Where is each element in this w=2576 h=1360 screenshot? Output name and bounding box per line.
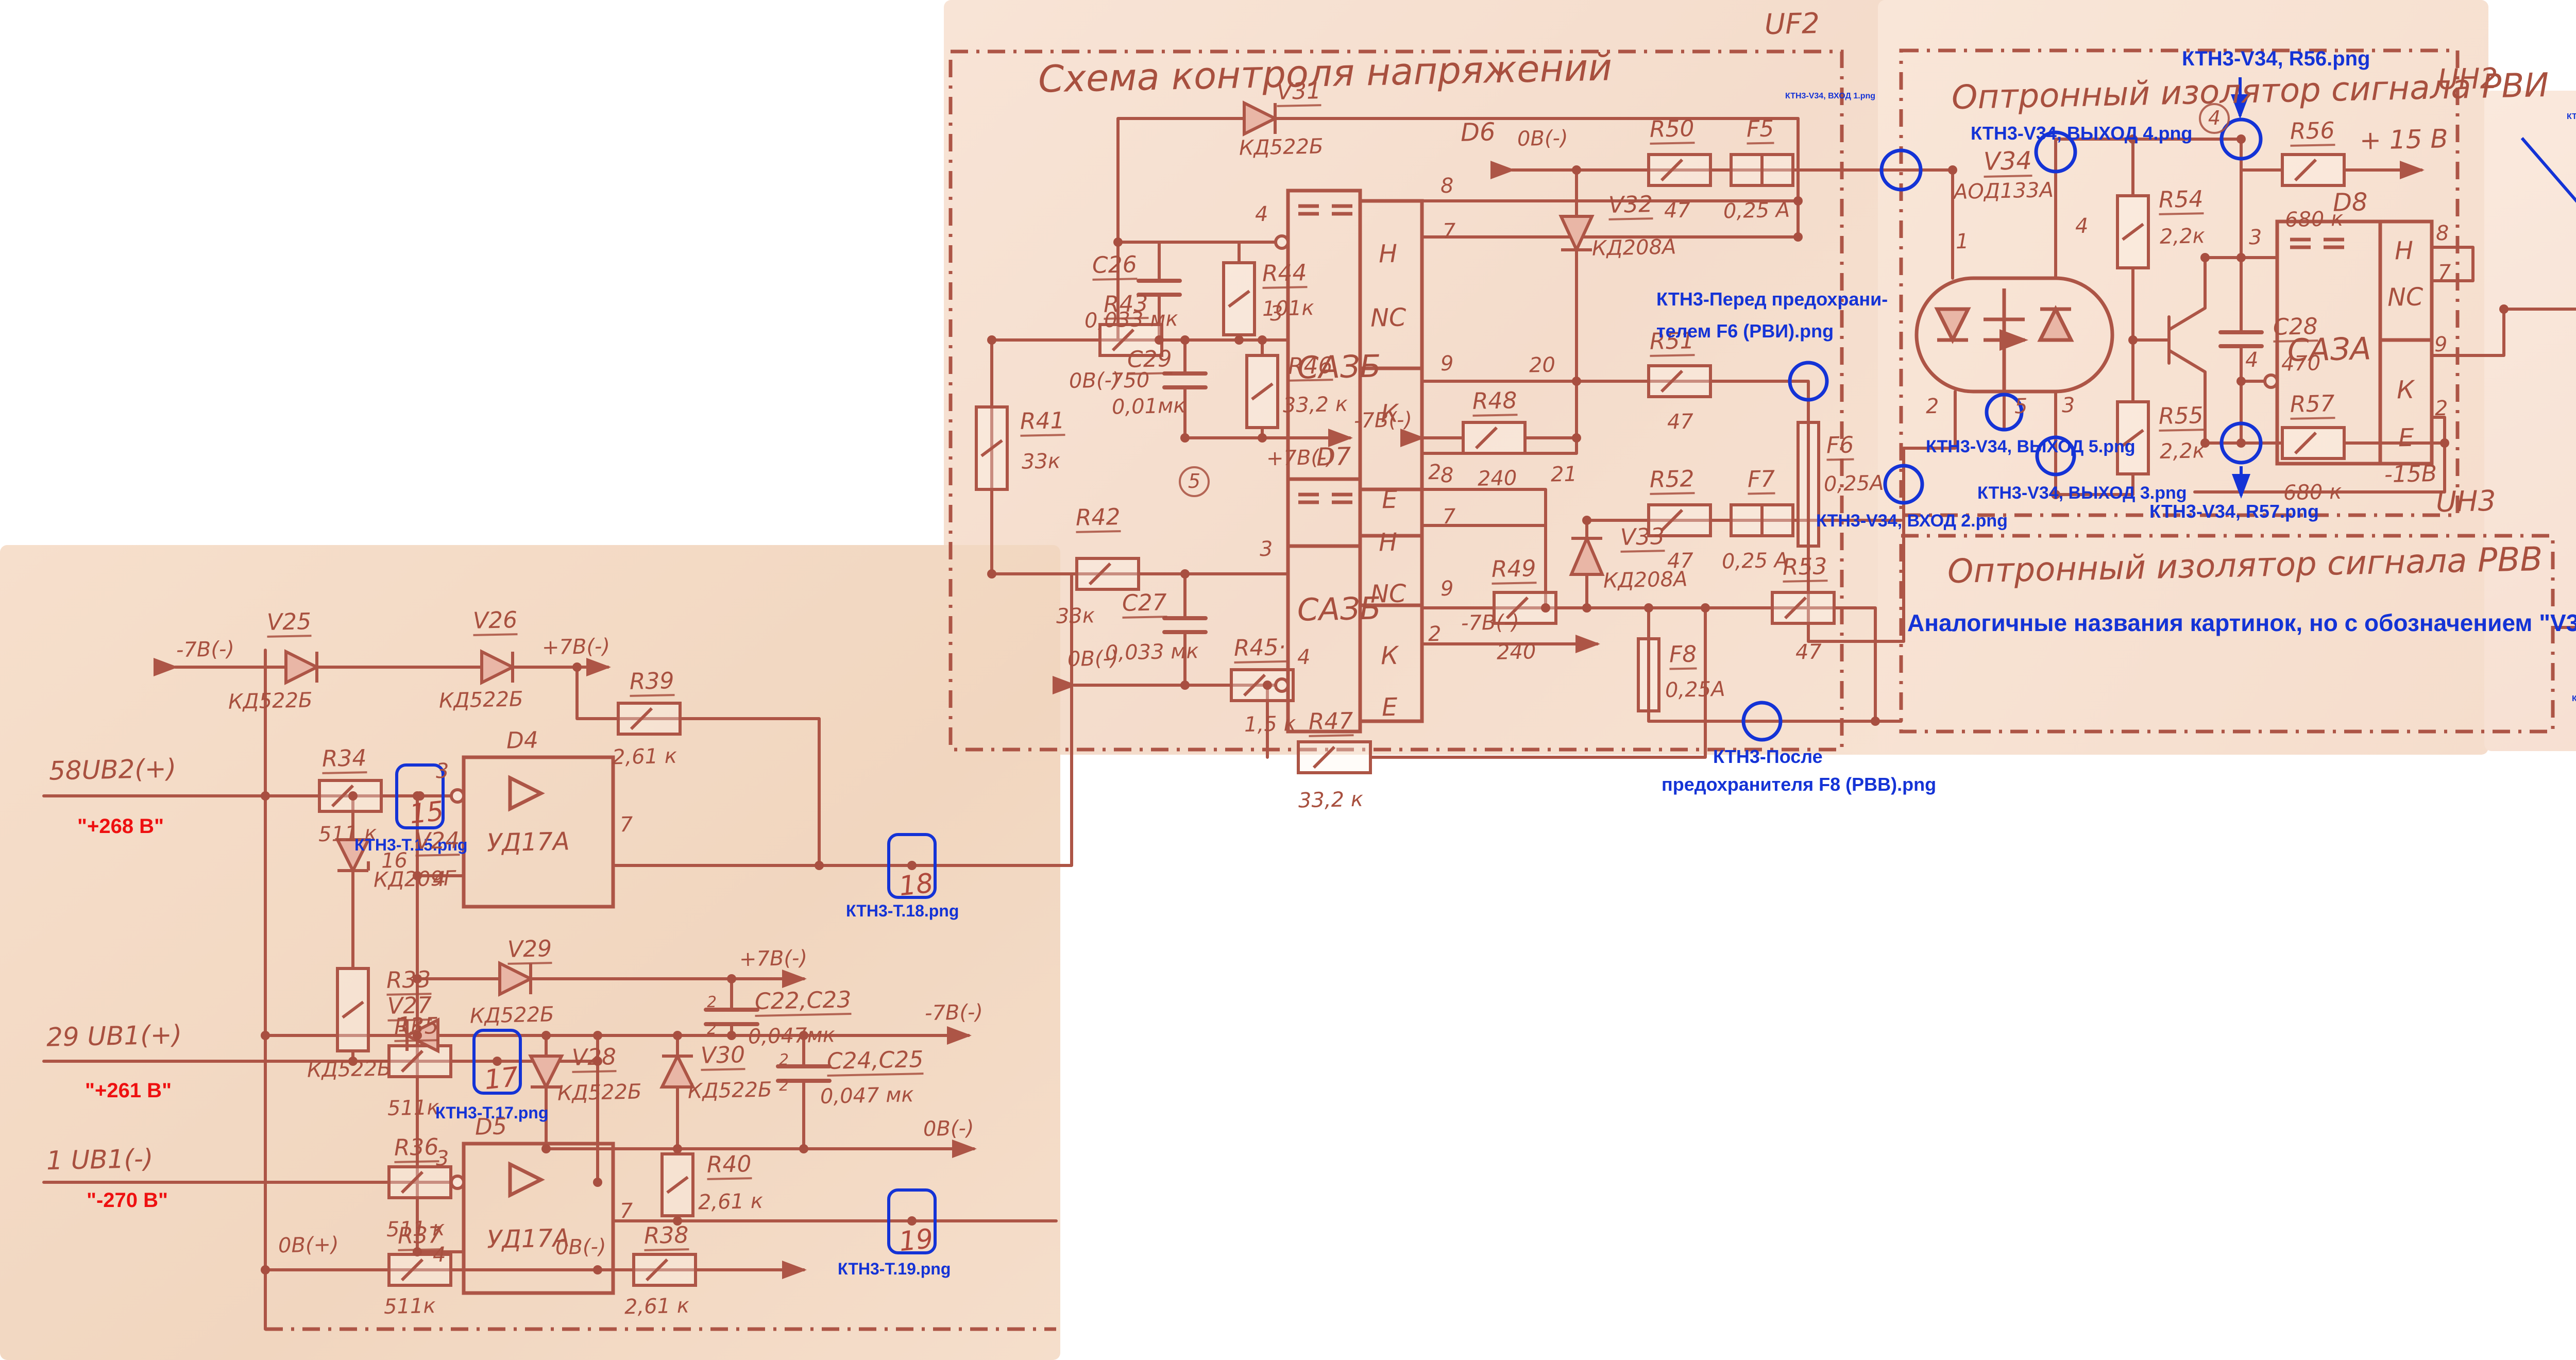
- r56-ref: R56: [2290, 119, 2335, 147]
- d8-ref: D8: [2332, 189, 2368, 216]
- v24-value: КД209Г: [374, 868, 455, 891]
- scanned-schematic-page: Схема контроля напряжений UF2 Оптронный …: [0, 0, 2576, 1360]
- v28-value: КД522Б: [557, 1081, 642, 1104]
- rail-m15: -15В: [2384, 462, 2437, 487]
- v26-ref: V26: [472, 608, 517, 636]
- c29-ref: C29: [1127, 347, 1172, 375]
- annotation-t19: КТН3-Т.19.png: [838, 1260, 951, 1279]
- tp19-number: 19: [897, 1223, 935, 1258]
- rail-m7-r48: -7В(-): [1354, 409, 1413, 432]
- rail-0vm-d7: 0В(-): [1067, 648, 1118, 670]
- v34-pin3: 3: [2062, 395, 2075, 417]
- r39-value: 2,61 к: [612, 745, 677, 769]
- r55-value: 2,2к: [2160, 440, 2206, 463]
- f8-value: 0,25А: [1665, 678, 1725, 701]
- d4-pin7: 7: [620, 814, 633, 836]
- d8-pin7: 7: [2438, 262, 2451, 284]
- d7-pin3: 3: [1260, 538, 1273, 560]
- annotation-out15: КТН3-ВЫХОД 15 - РВВ.png: [2572, 694, 2576, 704]
- v32-value: КД208А: [1592, 236, 1676, 259]
- annotation-r56: КТН3-V34, R56.png: [2182, 47, 2370, 71]
- r47-value: 33,2 к: [1298, 789, 1364, 812]
- c22-c23-value: 0,047мк: [748, 1024, 836, 1048]
- d4-pin3: 3: [436, 760, 449, 783]
- v34-pin4: 4: [2075, 215, 2089, 237]
- rail-m7-left-mid: -7В(-): [925, 1001, 984, 1024]
- r53-value: 47: [1795, 641, 1822, 663]
- d6-type: САЗБ: [1297, 350, 1381, 384]
- r38-value: 2,61 к: [624, 1295, 690, 1318]
- rail-0vm-left: 0В(-): [923, 1117, 974, 1140]
- annotation-posle-f8-line1: КТН3-После: [1713, 746, 1823, 768]
- f5-ref: F5: [1746, 117, 1774, 144]
- rail-p7-c22: +7В(-): [739, 947, 808, 971]
- d4-value: УД17А: [486, 828, 570, 856]
- f7-value: 0,25 А: [1722, 550, 1789, 573]
- measured-268v: "+268 В": [77, 815, 164, 838]
- annotation-vyhod5: КТН3-V34, ВЫХОД 5.png: [1926, 437, 2136, 457]
- tp18-number: 18: [897, 868, 935, 903]
- d8-pin9: 9: [2434, 334, 2448, 356]
- circled-note-4: 4: [2199, 103, 2230, 134]
- node-21: 21: [1551, 463, 1578, 485]
- d8-pin3: 3: [2249, 227, 2262, 249]
- rail-0vm-r43: 0В(-): [1069, 369, 1120, 392]
- d6-pin8: 8: [1440, 175, 1454, 197]
- v25-value: КД522Б: [228, 689, 313, 712]
- r46-value: 33,2 к: [1283, 394, 1348, 417]
- r48-value: 240: [1478, 467, 1517, 490]
- d4-ref: D4: [506, 728, 539, 753]
- r54-value: 2,2к: [2160, 225, 2206, 248]
- annotation-pered-f6-line2: телем F6 (РВИ).png: [1656, 320, 1834, 342]
- f6-ref: F6: [1826, 433, 1854, 461]
- d8-cell-h: Н: [2394, 238, 2413, 264]
- d5-ref: D5: [475, 1115, 507, 1139]
- d8-cell-nc: NC: [2387, 284, 2423, 311]
- v34-value: АОД133А: [1954, 179, 2054, 203]
- v26-value: КД522Б: [439, 688, 523, 711]
- c23-multiplier: 2: [707, 1021, 717, 1038]
- r57-ref: R57: [2290, 392, 2335, 420]
- c26-ref: C26: [1092, 253, 1137, 281]
- c25-multiplier: 2: [779, 1078, 789, 1094]
- d6-ref: D6: [1460, 119, 1496, 146]
- d7-pin7: 7: [1443, 506, 1456, 528]
- v24-ref: V24: [415, 829, 460, 857]
- rail-p7-left-top: +7В(-): [542, 636, 611, 659]
- d8-cell-e: Е: [2398, 425, 2414, 451]
- v27-value: КД522Б: [307, 1058, 392, 1081]
- r35-ref: R35: [394, 1014, 439, 1042]
- v32-ref: V32: [1608, 193, 1653, 220]
- v34-ref: V34: [1983, 148, 2032, 178]
- rail-m7-d7: -7В(-): [1461, 611, 1520, 634]
- r49-ref: R49: [1491, 557, 1536, 585]
- r35-value: 511к: [387, 1097, 439, 1119]
- annotation-r57: КТН3-V34, R57.png: [2149, 501, 2319, 522]
- r52-value: 47: [1667, 550, 1694, 572]
- r54-ref: R54: [2158, 188, 2204, 215]
- f8-ref: F8: [1669, 642, 1697, 670]
- tp15-number: 15: [408, 796, 445, 830]
- r52-ref: R52: [1649, 467, 1694, 495]
- r55-ref: R55: [2158, 404, 2204, 432]
- r40-value: 2,61 к: [698, 1191, 764, 1214]
- rail-p15: + 15 В: [2359, 125, 2448, 154]
- r41-ref: R41: [1020, 409, 1065, 437]
- v29-value: КД522Б: [470, 1004, 554, 1027]
- annotation-posle-f8-line2: предохранителя F8 (РВВ).png: [1662, 774, 1936, 795]
- rail-0vm-r38: 0В(-): [555, 1236, 606, 1259]
- annotation-out16: КТН3-ВЫХОД 16 - РВИ.png: [2567, 112, 2576, 122]
- annotation-t18: КТН3-Т.18.png: [846, 902, 959, 921]
- r34-ref: R34: [321, 746, 367, 774]
- c29-value: 0,01мк: [1112, 395, 1186, 418]
- r44-ref: R44: [1262, 261, 1307, 289]
- d5-pin7: 7: [620, 1200, 633, 1222]
- r33-ref: R33: [386, 968, 431, 996]
- c22-multiplier: 2: [707, 994, 717, 1011]
- d8-pin2: 2: [2435, 398, 2448, 420]
- c24-c25-value: 0,047 мк: [820, 1084, 914, 1108]
- input-29ub1-label: 29 UB1(+): [46, 1021, 182, 1051]
- r43-ref: R43: [1103, 292, 1148, 320]
- d7-pin9: 9: [1440, 578, 1454, 600]
- r39-ref: R39: [629, 669, 674, 697]
- r42-value: 33к: [1056, 605, 1095, 627]
- f7-ref: F7: [1747, 467, 1775, 495]
- d6-pin2: 2: [1428, 462, 1442, 484]
- d7-ref: D7: [1316, 444, 1351, 470]
- v29-ref: V29: [507, 937, 552, 965]
- d8-pin8: 8: [2436, 223, 2449, 245]
- r38-ref: R38: [643, 1223, 689, 1251]
- node-20: 20: [1529, 354, 1556, 376]
- r53-ref: R53: [1782, 555, 1827, 583]
- v34-pin1: 1: [1956, 231, 1969, 253]
- d5-pin3: 3: [436, 1148, 449, 1170]
- annotation-vhod2: КТН3-V34, ВХОД 2.png: [1816, 511, 2008, 531]
- circled-note-5: 5: [1179, 466, 1210, 497]
- c27-value: 0,033 мк: [1105, 640, 1199, 664]
- d8-cell-k: К: [2396, 377, 2414, 403]
- annotation-pered-f6-line1: КТН3-Перед предохрани-: [1656, 288, 1888, 310]
- v30-ref: V30: [700, 1043, 745, 1071]
- r36-ref: R36: [394, 1135, 439, 1163]
- r45-value: 1,5 к: [1244, 713, 1296, 736]
- c24-c25-ref: C24,C25: [826, 1048, 923, 1077]
- d8-type: САЗА: [2287, 333, 2371, 367]
- r42-ref: R42: [1075, 505, 1121, 533]
- d7-pin2: 2: [1428, 623, 1442, 645]
- r48-ref: R48: [1472, 389, 1517, 417]
- d6-cell-nc: NC: [1370, 304, 1406, 331]
- d6-pin4: 4: [1255, 203, 1268, 226]
- v28-ref: V28: [571, 1045, 616, 1073]
- d6-cell-h: Н: [1378, 241, 1397, 267]
- r50-value: 47: [1664, 199, 1691, 222]
- v34-pin2: 2: [1926, 396, 1939, 418]
- r40-ref: R40: [706, 1152, 752, 1180]
- c27-ref: C27: [1122, 591, 1167, 619]
- input-58ub2-label: 58UB2(+): [48, 755, 176, 785]
- d7-type: САЗБ: [1297, 592, 1381, 626]
- c24-multiplier: 2: [779, 1052, 789, 1068]
- d7-cell-nc: NC: [1370, 581, 1406, 607]
- r37-value: 511к: [384, 1295, 436, 1318]
- d6-cell-e: Е: [1381, 487, 1397, 513]
- v33-ref: V33: [1620, 525, 1665, 553]
- input-1ub1-label: 1 UB1(-): [46, 1145, 154, 1175]
- measured-270v: "-270 В": [87, 1189, 168, 1212]
- rail-m7-left-top: -7В(-): [176, 638, 235, 661]
- r37-ref: R37: [397, 1223, 443, 1251]
- r49-value: 240: [1497, 641, 1536, 664]
- r50-ref: R50: [1649, 117, 1694, 145]
- v25-ref: V25: [266, 610, 311, 638]
- uh2-section-tag: UH2: [2437, 64, 2498, 95]
- d8-pin4: 4: [2245, 349, 2259, 371]
- rail-0vp: 0В(+): [278, 1234, 339, 1256]
- r51-value: 47: [1667, 411, 1694, 433]
- r45-ref: R45·: [1233, 636, 1286, 664]
- uf2-section-tag: UF2: [1764, 9, 1820, 40]
- rail-0vm-top: 0В(-): [1517, 127, 1568, 150]
- d6-pin9: 9: [1440, 353, 1454, 375]
- v31-value: КД522Б: [1239, 135, 1324, 159]
- r41-value: 33к: [1022, 450, 1061, 473]
- d7-cell-h: Н: [1378, 530, 1397, 556]
- d6-pin7: 7: [1443, 220, 1456, 243]
- d7-cell-e: Е: [1381, 694, 1397, 721]
- d7-pin8: 8: [1440, 465, 1454, 487]
- v34-pin5: 5: [2014, 396, 2028, 418]
- f6-value: 0,25А: [1824, 472, 1884, 495]
- d7-pin4: 4: [1297, 647, 1311, 669]
- measured-261v: "+261 В": [85, 1079, 172, 1102]
- tp17-number: 17: [483, 1062, 520, 1096]
- annotation-vhod1: КТН3-V34, ВХОД 1.png: [1785, 92, 1875, 101]
- v30-value: КД522Б: [688, 1079, 772, 1102]
- r47-ref: R47: [1308, 709, 1353, 737]
- d6-pin3: 3: [1270, 303, 1283, 325]
- annotation-vyhod4: КТН3-V34, ВЫХОД 4.png: [1971, 123, 2192, 144]
- v31-ref: V31: [1276, 79, 1321, 107]
- f5-value: 0,25 А: [1723, 199, 1790, 223]
- c22-c23-ref: C22,C23: [754, 988, 851, 1017]
- d7-cell-k: К: [1380, 643, 1398, 669]
- uh3-section-tag: UH3: [2435, 486, 2496, 517]
- annotation-analog-v35: Аналогичные названия картинок, но с обоз…: [1907, 609, 2576, 637]
